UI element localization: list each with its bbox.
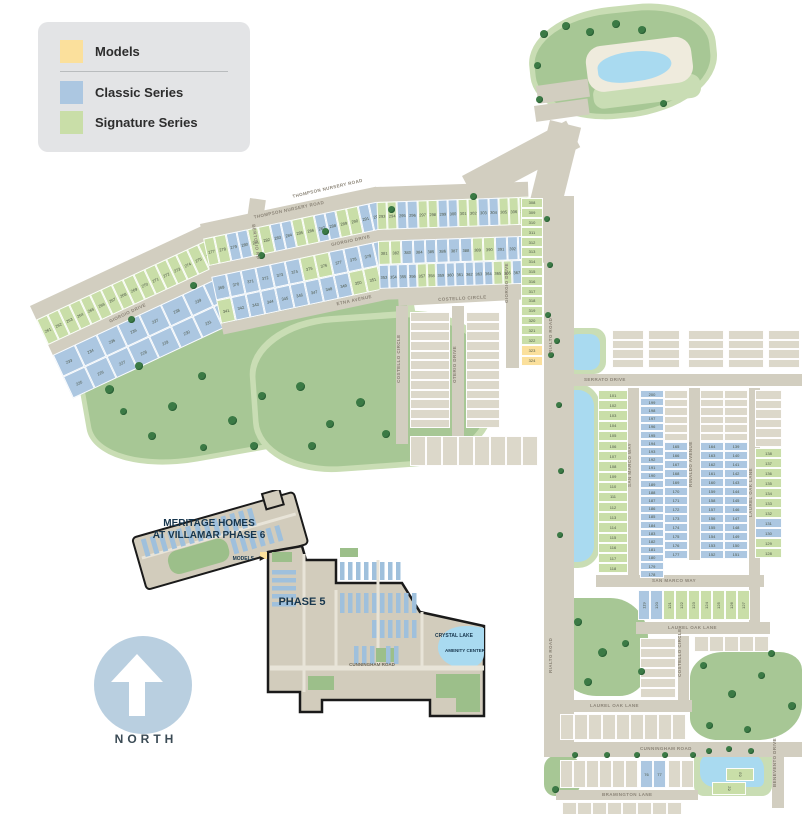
legend-label: Signature Series	[95, 115, 198, 130]
tree-icon	[388, 206, 395, 213]
future-lot-strip	[562, 802, 682, 814]
lot-strip-colE: 138137136135134133132131130129128	[755, 448, 782, 558]
future-lot	[466, 341, 500, 351]
lot-128: 128	[755, 548, 782, 558]
tree-icon	[574, 618, 582, 626]
lot-164: 164	[700, 442, 724, 451]
lot-106: 106	[598, 441, 628, 451]
signature-swatch	[60, 111, 83, 134]
future-lot	[688, 330, 724, 340]
lot-165: 165	[664, 442, 688, 451]
lot-153: 153	[700, 541, 724, 550]
future-lot	[607, 802, 622, 814]
future-lot	[474, 436, 490, 466]
lot-101: 101	[598, 390, 628, 400]
tree-icon	[638, 668, 645, 675]
inset-crystal-lake-label: CRYSTAL LAKE	[426, 633, 482, 639]
lot-strip-colGiorgio: 3083093103113123133143153163173183193203…	[521, 198, 543, 345]
lot-313: 313	[521, 247, 543, 257]
tree-icon	[728, 690, 736, 698]
future-lot	[700, 390, 724, 399]
future-lot-strip	[755, 390, 782, 447]
future-lot	[574, 714, 588, 740]
lot-387: 387	[448, 238, 461, 262]
tree-icon	[135, 362, 143, 370]
classic-swatch	[60, 81, 83, 104]
lot-103: 103	[598, 410, 628, 420]
future-lot	[490, 436, 506, 466]
future-lot	[466, 360, 500, 370]
lot-320: 320	[521, 316, 543, 326]
lot-155: 155	[700, 523, 724, 532]
lot-167: 167	[664, 460, 688, 469]
road-label-oterio: OTERIO DRIVE	[457, 378, 494, 383]
tree-icon	[296, 382, 305, 391]
future-lot	[410, 419, 450, 429]
lot-strip-lot62: 62	[712, 782, 746, 795]
lot-314: 314	[521, 257, 543, 267]
future-lot	[755, 438, 782, 448]
tree-icon	[228, 416, 237, 425]
lot-385: 385	[425, 239, 438, 263]
tree-icon	[128, 316, 135, 323]
future-lot	[700, 399, 724, 408]
lot-199: 199	[640, 398, 664, 406]
future-lot	[658, 714, 672, 740]
future-lot	[728, 340, 764, 350]
future-lot	[410, 409, 450, 419]
future-lot	[728, 330, 764, 340]
future-lot	[458, 436, 474, 466]
tree-icon	[558, 468, 564, 474]
lot-strip-col2R: 139140141142143144145146147148149150151	[724, 442, 748, 559]
tree-icon	[536, 96, 543, 103]
future-lot-strip	[612, 330, 644, 368]
lot-166: 166	[664, 451, 688, 460]
future-lot-strip	[700, 390, 724, 441]
lot-126: 126	[725, 590, 737, 620]
future-lot-strip	[560, 714, 686, 740]
lot-77: 77	[653, 760, 666, 788]
tree-icon	[148, 432, 156, 440]
lot-strip-lot63: 63	[726, 768, 754, 781]
tree-icon	[604, 752, 610, 758]
future-lot	[506, 436, 522, 466]
future-lot	[410, 312, 450, 322]
future-lot	[724, 399, 748, 408]
future-lot	[410, 399, 450, 409]
lot-63: 63	[726, 768, 754, 781]
lot-105: 105	[598, 431, 628, 441]
lot-112: 112	[598, 502, 628, 512]
future-lot	[612, 349, 644, 359]
future-lot-strip	[768, 330, 800, 368]
lot-130: 130	[755, 528, 782, 538]
future-lot	[410, 341, 450, 351]
future-lot	[728, 359, 764, 369]
tree-icon	[622, 640, 629, 647]
future-lot	[612, 760, 625, 788]
lot-315: 315	[521, 267, 543, 277]
future-lot	[562, 802, 577, 814]
lot-107: 107	[598, 451, 628, 461]
future-lot	[592, 802, 607, 814]
lot-131: 131	[755, 518, 782, 528]
lot-322: 322	[521, 335, 543, 345]
lot-114: 114	[598, 522, 628, 532]
future-lot	[612, 340, 644, 350]
future-lot	[768, 330, 800, 340]
future-lot	[668, 760, 681, 788]
lot-162: 162	[700, 460, 724, 469]
tree-icon	[748, 748, 754, 754]
future-lot-strip	[728, 330, 764, 368]
future-lot	[688, 349, 724, 359]
lot-197: 197	[640, 415, 664, 423]
future-lot	[602, 714, 616, 740]
lot-104: 104	[598, 421, 628, 431]
lot-386: 386	[436, 239, 449, 263]
legend-divider	[60, 71, 228, 72]
lot-124: 124	[700, 590, 712, 620]
road-label-giorgio: GIORGIO DRIVE	[509, 298, 549, 303]
future-lot	[700, 407, 724, 416]
legend: Models Classic Series Signature Series	[38, 22, 250, 152]
lot-strip-row7677: 7677	[640, 760, 666, 788]
lot-391: 391	[495, 236, 508, 260]
inset-phase5-label: PHASE 5	[266, 596, 338, 608]
lot-125: 125	[712, 590, 724, 620]
tree-icon	[540, 30, 548, 38]
site-map: Models Classic Series Signature Series N…	[0, 0, 802, 814]
lot-strip-colW: 1011021031041051061071081091101111121131…	[598, 390, 628, 573]
future-lot	[616, 714, 630, 740]
tree-icon	[726, 746, 732, 752]
lot-123: 123	[688, 590, 700, 620]
models-swatch	[60, 40, 83, 63]
future-lot	[755, 428, 782, 438]
future-lot	[681, 760, 694, 788]
tree-icon	[556, 402, 562, 408]
future-lot	[426, 436, 442, 466]
tree-icon	[382, 430, 390, 438]
future-lot-strip	[688, 330, 724, 368]
lot-392: 392	[506, 236, 519, 260]
lot-138: 138	[755, 448, 782, 458]
future-lot	[410, 390, 450, 400]
future-lot	[648, 359, 680, 369]
future-lot	[410, 351, 450, 361]
lot-324: 324	[521, 356, 543, 367]
road-label-bramington: BRAMINGTON LANE	[602, 792, 652, 797]
tree-icon	[700, 662, 707, 669]
lot-198: 198	[640, 406, 664, 414]
inset-amenity-center-label: AMENITY CENTER	[444, 648, 486, 653]
lot-323: 323	[521, 345, 543, 356]
road-label-rinaldo: RINALDO AVENUE	[693, 482, 739, 487]
lot-174: 174	[664, 523, 688, 532]
future-lot	[466, 322, 500, 332]
lot-116: 116	[598, 543, 628, 553]
future-lot	[755, 419, 782, 429]
future-lot	[466, 312, 500, 322]
lot-108: 108	[598, 461, 628, 471]
lot-186: 186	[640, 505, 664, 513]
road-label-benevento: BENEVENTO DRIVE	[777, 782, 802, 787]
lot-149: 149	[724, 532, 748, 541]
road-label-costello: COSTELLO CIRCLE	[401, 378, 450, 383]
lot-158: 158	[700, 496, 724, 505]
future-lot	[688, 359, 724, 369]
future-lot	[648, 330, 680, 340]
future-lot	[648, 340, 680, 350]
lot-152: 152	[700, 550, 724, 559]
future-lot	[640, 648, 676, 658]
lot-137: 137	[755, 458, 782, 468]
tree-icon	[744, 726, 751, 733]
future-lot	[754, 636, 769, 652]
future-lot	[755, 390, 782, 400]
road-label-laurel_oak: LAUREL OAK LANE	[590, 703, 639, 708]
future-lot	[522, 436, 538, 466]
lot-321: 321	[521, 325, 543, 335]
lot-388: 388	[460, 238, 473, 262]
lot-133: 133	[755, 498, 782, 508]
future-lot	[612, 359, 644, 369]
lot-strip-rowSanMarco: 119120121122123124125126127	[638, 590, 750, 620]
future-lot	[709, 636, 724, 652]
future-lot	[667, 802, 682, 814]
tree-icon	[322, 228, 329, 235]
future-lot	[560, 714, 574, 740]
lot-151: 151	[724, 550, 748, 559]
lot-109: 109	[598, 472, 628, 482]
lot-147: 147	[724, 514, 748, 523]
tree-icon	[690, 752, 696, 758]
lot-113: 113	[598, 512, 628, 522]
future-lot	[640, 688, 676, 698]
future-lot	[724, 433, 748, 442]
lot-141: 141	[724, 460, 748, 469]
lot-144: 144	[724, 487, 748, 496]
road-label-cunningham: CUNNINGHAM ROAD	[640, 746, 692, 751]
tree-icon	[768, 650, 775, 657]
road-label-laurel_oak: LAUREL OAK LANE	[753, 512, 802, 517]
tree-icon	[612, 20, 620, 28]
future-lot	[664, 399, 688, 408]
future-lot	[672, 714, 686, 740]
lot-121: 121	[663, 590, 675, 620]
future-lot-strip	[664, 390, 688, 441]
lot-181: 181	[640, 546, 664, 554]
lot-382: 382	[390, 240, 403, 264]
future-lot	[739, 636, 754, 652]
road-label-rialto: RIALTO ROAD	[553, 668, 588, 673]
lot-185: 185	[640, 513, 664, 521]
lot-62: 62	[712, 782, 746, 795]
lot-191: 191	[640, 464, 664, 472]
lot-122: 122	[675, 590, 687, 620]
legend-label: Classic Series	[95, 85, 183, 100]
road-label-laurel_oak: LAUREL OAK LANE	[668, 625, 717, 630]
future-lot-strip	[466, 312, 500, 428]
legend-item-models: Models	[60, 36, 250, 66]
future-lot	[724, 407, 748, 416]
tree-icon	[660, 100, 667, 107]
future-lot	[442, 436, 458, 466]
tree-icon	[557, 532, 563, 538]
lot-175: 175	[664, 532, 688, 541]
lot-188: 188	[640, 488, 664, 496]
inset-title-line1: MERITAGE HOMES	[134, 518, 284, 529]
future-lot-strip	[694, 636, 769, 652]
future-lot	[410, 331, 450, 341]
lot-170: 170	[664, 487, 688, 496]
future-lot	[466, 351, 500, 361]
lot-182: 182	[640, 537, 664, 545]
lot-317: 317	[521, 286, 543, 296]
lot-139: 139	[724, 442, 748, 451]
lot-129: 129	[755, 538, 782, 548]
lot-142: 142	[724, 469, 748, 478]
future-lot	[630, 714, 644, 740]
tree-icon	[638, 26, 646, 34]
lot-strip-colModels: 323324	[521, 345, 543, 366]
tree-icon	[598, 648, 607, 657]
future-lot	[768, 359, 800, 369]
future-lot-strip	[560, 760, 638, 788]
future-lot-strip	[648, 330, 680, 368]
tree-icon	[250, 442, 258, 450]
tree-icon	[120, 408, 127, 415]
lot-183: 183	[640, 529, 664, 537]
road-label-rialto: RIALTO ROAD	[553, 348, 588, 353]
future-lot	[728, 349, 764, 359]
future-lot	[755, 400, 782, 410]
future-lot	[648, 349, 680, 359]
lot-120: 120	[650, 590, 662, 620]
future-lot	[466, 419, 500, 429]
tree-icon	[470, 193, 477, 200]
lot-187: 187	[640, 496, 664, 504]
tree-icon	[534, 62, 541, 69]
lot-127: 127	[737, 590, 749, 620]
road-label-costello: COSTELLO CIRCLE	[682, 672, 731, 677]
lot-389: 389	[471, 237, 484, 261]
lot-311: 311	[521, 227, 543, 237]
tree-icon	[572, 752, 578, 758]
lot-136: 136	[755, 468, 782, 478]
future-lot	[664, 407, 688, 416]
future-lot	[612, 330, 644, 340]
lot-384: 384	[413, 239, 426, 263]
lot-159: 159	[700, 487, 724, 496]
lot-308: 308	[521, 198, 543, 208]
inset-models-arrow-icon: ▶	[257, 555, 267, 562]
lot-135: 135	[755, 478, 782, 488]
legend-item-signature: Signature Series	[60, 107, 250, 137]
lot-172: 172	[664, 505, 688, 514]
lot-76: 76	[640, 760, 653, 788]
future-lot	[694, 636, 709, 652]
lot-156: 156	[700, 514, 724, 523]
lot-390: 390	[483, 237, 496, 261]
lot-193: 193	[640, 447, 664, 455]
lot-179: 179	[640, 562, 664, 570]
tree-icon	[586, 28, 594, 36]
future-lot	[768, 349, 800, 359]
lot-319: 319	[521, 306, 543, 316]
future-lot	[625, 760, 638, 788]
lot-154: 154	[700, 532, 724, 541]
legend-item-classic: Classic Series	[60, 77, 250, 107]
lot-180: 180	[640, 554, 664, 562]
inset-models-label: MODELS	[212, 556, 254, 562]
future-lot	[410, 436, 426, 466]
tree-icon	[356, 398, 365, 407]
lot-312: 312	[521, 237, 543, 247]
future-lot	[466, 399, 500, 409]
future-lot	[755, 409, 782, 419]
future-lot	[560, 760, 573, 788]
lot-177: 177	[664, 550, 688, 559]
future-lot	[466, 331, 500, 341]
future-lot	[664, 433, 688, 442]
lot-310: 310	[521, 218, 543, 228]
tree-icon	[562, 22, 570, 30]
inset-cunningham-label: CUNNINGHAM ROAD	[330, 662, 414, 667]
future-lot	[599, 760, 612, 788]
lot-148: 148	[724, 523, 748, 532]
lot-309: 309	[521, 208, 543, 218]
tree-icon	[198, 372, 206, 380]
tree-icon	[554, 338, 560, 344]
tree-icon	[758, 672, 765, 679]
future-lot	[700, 433, 724, 442]
future-lot	[586, 760, 599, 788]
lot-381: 381	[378, 241, 391, 265]
lot-111: 111	[598, 492, 628, 502]
lot-383: 383	[401, 240, 414, 264]
lot-118: 118	[598, 563, 628, 573]
future-lot	[622, 802, 637, 814]
future-lot	[724, 416, 748, 425]
future-lot	[410, 360, 450, 370]
future-lot	[410, 322, 450, 332]
tree-icon	[706, 748, 712, 754]
future-lot	[664, 390, 688, 399]
lot-171: 171	[664, 496, 688, 505]
tree-icon	[552, 786, 559, 793]
future-lot-strip	[410, 436, 538, 466]
future-lot	[640, 658, 676, 668]
tree-icon	[706, 722, 713, 729]
future-lot	[466, 409, 500, 419]
lot-110: 110	[598, 482, 628, 492]
future-lot	[688, 340, 724, 350]
tree-icon	[544, 216, 550, 222]
future-lot	[466, 390, 500, 400]
inset-title-line2: AT VILLAMAR PHASE 6	[134, 530, 284, 541]
legend-label: Models	[95, 44, 140, 59]
future-lot	[724, 390, 748, 399]
lot-163: 163	[700, 451, 724, 460]
future-lot-strip	[410, 312, 450, 428]
road-label-serrato: SERRATO DRIVE	[584, 377, 626, 382]
future-lot	[664, 416, 688, 425]
lot-strip-col1R: 165166167168169170171172173174175176177	[664, 442, 688, 559]
tree-icon	[258, 392, 266, 400]
